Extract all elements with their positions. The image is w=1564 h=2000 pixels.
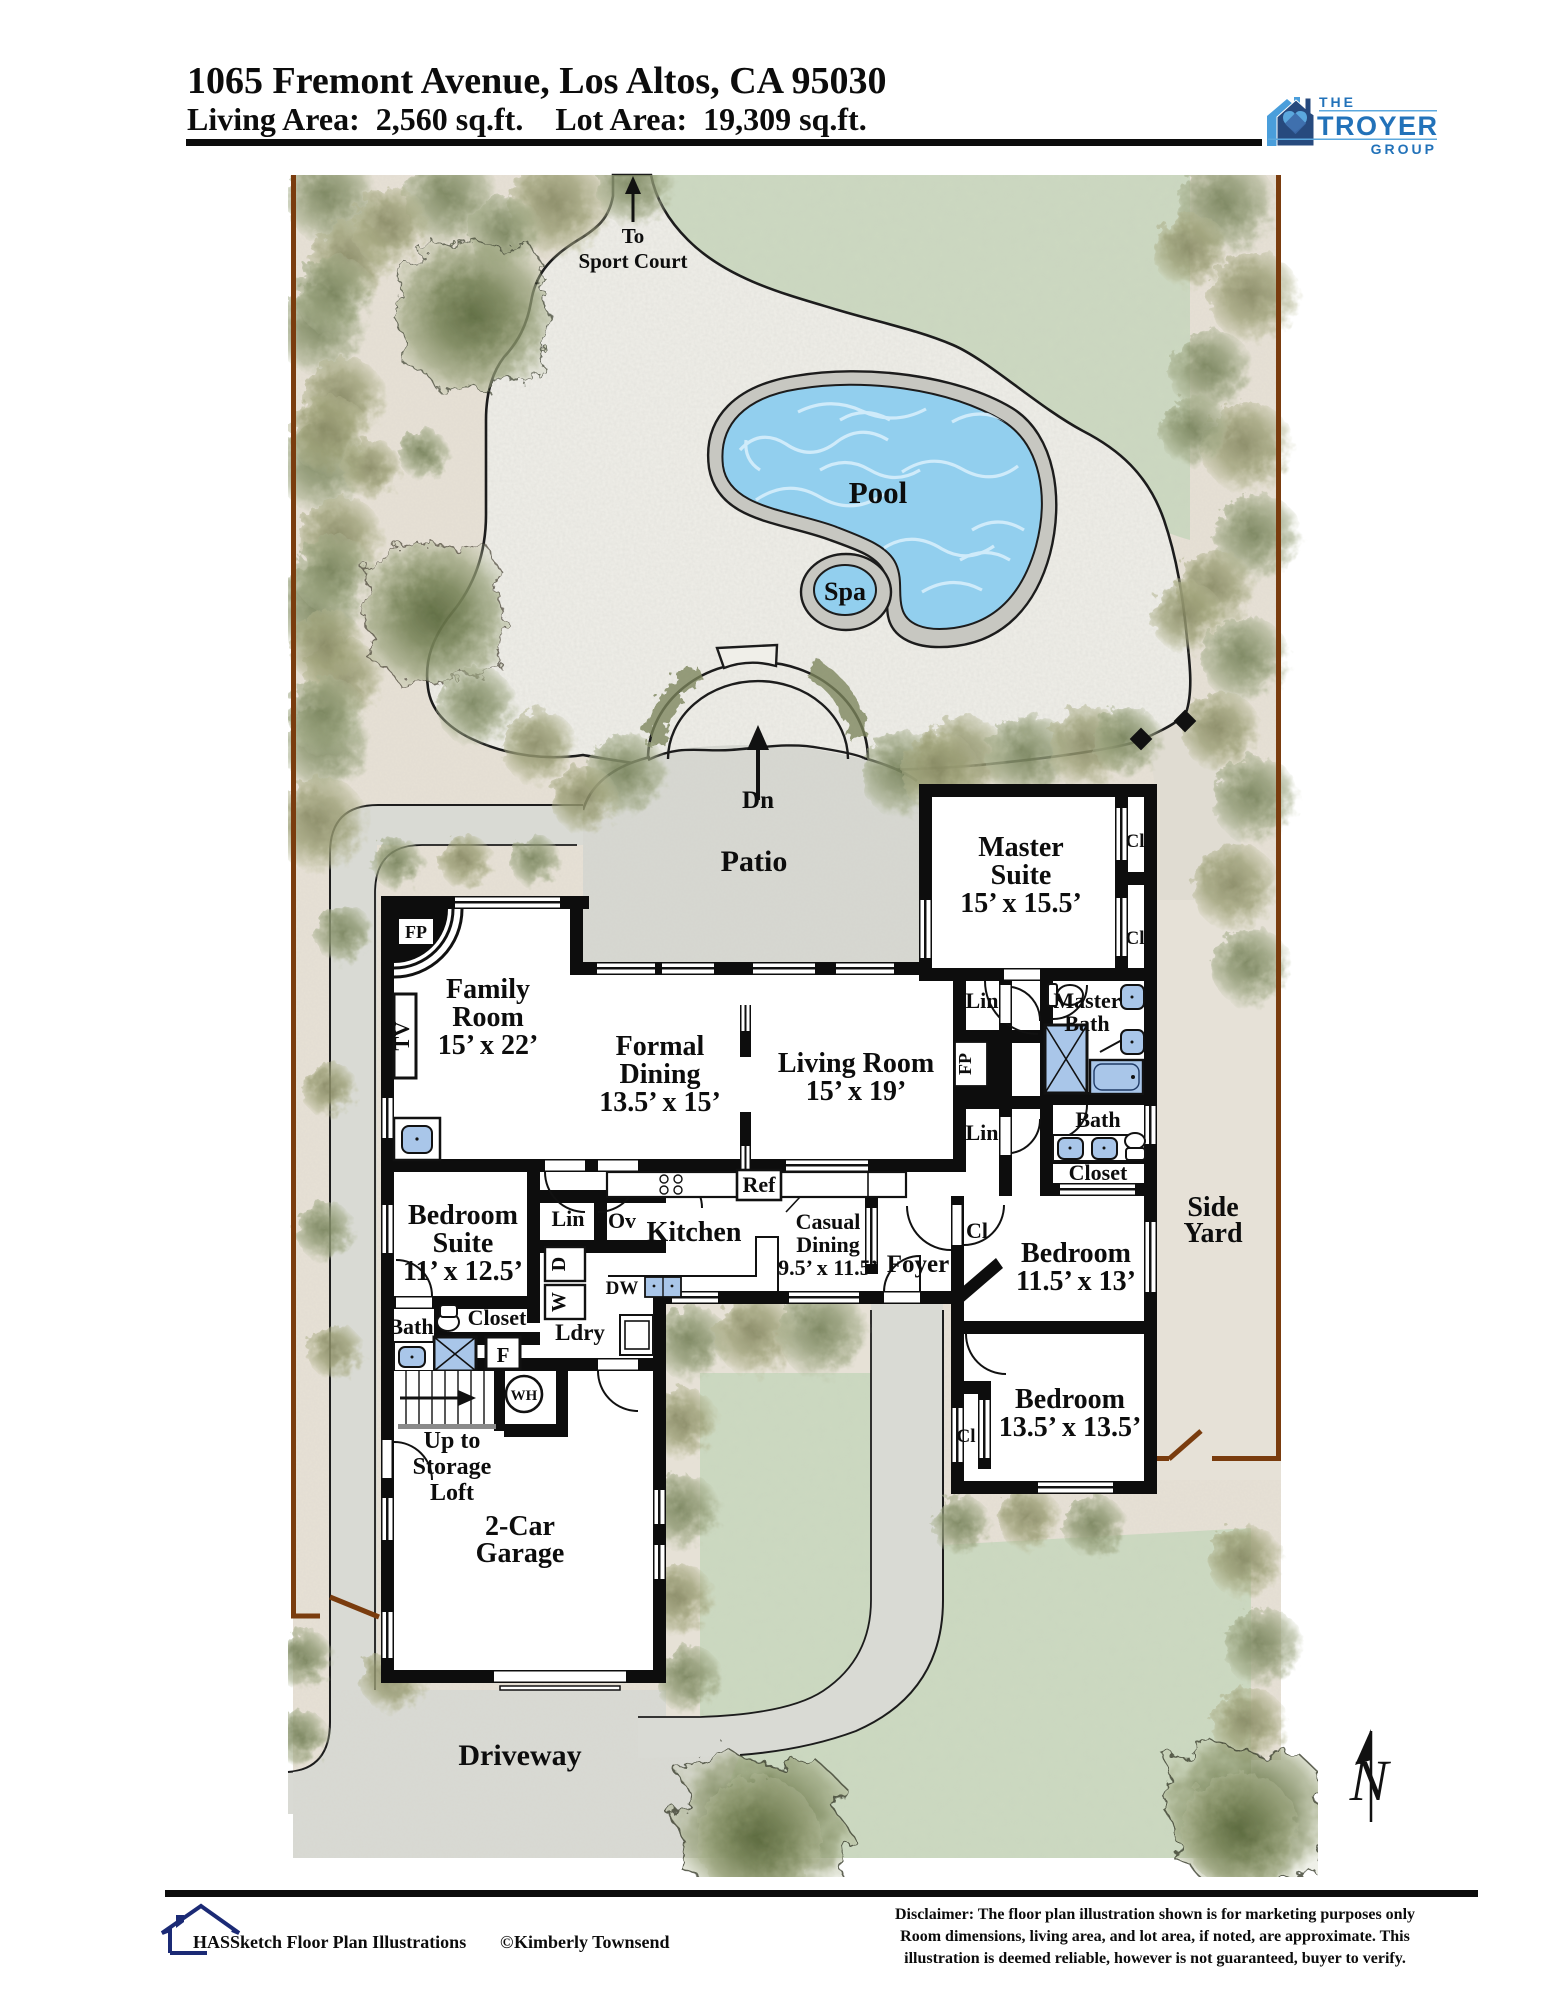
svg-text:Cl: Cl [1126, 928, 1145, 949]
svg-text:Bedroom: Bedroom [1015, 1384, 1125, 1415]
svg-text:Cl: Cl [966, 1218, 988, 1243]
svg-text:Lin: Lin [965, 988, 998, 1013]
svg-text:Closet: Closet [468, 1305, 527, 1330]
svg-text:Dining: Dining [796, 1232, 860, 1257]
svg-text:Ov: Ov [608, 1208, 636, 1233]
svg-text:Bedroom: Bedroom [1021, 1238, 1131, 1269]
svg-text:illustration is deemed reliabl: illustration is deemed reliable, however… [904, 1950, 1406, 1967]
svg-text:HASSketch Floor Plan Illustrat: HASSketch Floor Plan Illustrations [193, 1932, 466, 1952]
svg-text:15’ x 19’: 15’ x 19’ [806, 1076, 907, 1107]
svg-text:Room dimensions, living area,: Room dimensions, living area, and lot ar… [900, 1928, 1410, 1945]
svg-text:Patio: Patio [721, 845, 788, 878]
svg-text:Formal: Formal [616, 1031, 705, 1062]
svg-text:Bath: Bath [1075, 1107, 1120, 1132]
svg-text:Suite: Suite [991, 860, 1052, 891]
svg-text:FP: FP [405, 922, 427, 942]
svg-text:Cl: Cl [957, 1426, 976, 1447]
svg-text:11.5’ x 13’: 11.5’ x 13’ [1016, 1266, 1136, 1297]
svg-text:Dn: Dn [742, 787, 774, 814]
svg-text:Living Room: Living Room [778, 1048, 934, 1079]
svg-text:Storage: Storage [413, 1454, 492, 1480]
svg-text:Room: Room [452, 1002, 524, 1033]
svg-text:13.5’ x 15’: 13.5’ x 15’ [599, 1087, 721, 1118]
svg-text:F: F [497, 1343, 510, 1367]
svg-text:WH: WH [511, 1388, 538, 1404]
svg-text:Pool: Pool [849, 475, 908, 510]
svg-text:Yard: Yard [1183, 1218, 1243, 1249]
svg-text:Master: Master [1053, 988, 1120, 1013]
svg-text:TROYER: TROYER [1317, 111, 1439, 141]
svg-text:Disclaimer: The floor plan ill: Disclaimer: The floor plan illustration … [895, 1906, 1415, 1923]
svg-text:Sport Court: Sport Court [578, 249, 687, 273]
svg-text:Kitchen: Kitchen [647, 1217, 742, 1248]
svg-text:FP: FP [955, 1053, 975, 1075]
svg-text:13.5’ x 13.5’: 13.5’ x 13.5’ [999, 1412, 1142, 1443]
svg-text:Family: Family [446, 974, 530, 1005]
svg-text:Garage: Garage [476, 1538, 565, 1569]
svg-text:Living Area: 2,560 sq.ft.: Living Area: 2,560 sq.ft. Lot Area: 19,3… [187, 101, 867, 137]
svg-text:Lin: Lin [551, 1206, 584, 1231]
svg-text:Up to: Up to [424, 1428, 481, 1454]
svg-text:Driveway: Driveway [458, 1739, 581, 1772]
svg-text:Bedroom: Bedroom [408, 1200, 518, 1231]
svg-text:9.5’ x 11.5’: 9.5’ x 11.5’ [778, 1255, 878, 1280]
svg-text:Casual: Casual [796, 1209, 861, 1234]
svg-text:Ldry: Ldry [555, 1320, 605, 1345]
svg-text:Spa: Spa [824, 577, 866, 606]
svg-text:Kimberly Townsend: Kimberly Townsend [514, 1932, 670, 1952]
svg-text:DW: DW [606, 1278, 639, 1299]
svg-text:©: © [500, 1932, 513, 1952]
svg-text:Master: Master [978, 832, 1064, 863]
svg-text:Lin: Lin [965, 1120, 998, 1145]
svg-text:Bath: Bath [1064, 1011, 1109, 1036]
svg-text:Loft: Loft [430, 1480, 474, 1506]
svg-text:N: N [1349, 1748, 1392, 1813]
svg-text:THE: THE [1319, 94, 1356, 110]
svg-text:D: D [548, 1257, 570, 1271]
svg-text:To: To [622, 224, 645, 248]
svg-text:1065 Fremont Avenue, Los Altos: 1065 Fremont Avenue, Los Altos, CA 95030 [187, 60, 887, 102]
svg-text:Ref: Ref [743, 1172, 777, 1197]
svg-text:Cl: Cl [1126, 831, 1145, 852]
svg-text:Foyer: Foyer [887, 1251, 949, 1278]
svg-text:Bath: Bath [388, 1314, 433, 1339]
svg-text:15’ x 22’: 15’ x 22’ [438, 1030, 539, 1061]
svg-text:TV: TV [390, 1021, 414, 1050]
svg-text:11’ x 12.5’: 11’ x 12.5’ [403, 1256, 523, 1287]
svg-text:Closet: Closet [1069, 1160, 1128, 1185]
svg-text:Suite: Suite [433, 1228, 494, 1259]
svg-text:W: W [548, 1292, 570, 1312]
svg-text:15’ x 15.5’: 15’ x 15.5’ [960, 888, 1082, 919]
svg-text:Dining: Dining [620, 1059, 701, 1090]
svg-text:GROUP: GROUP [1371, 141, 1437, 157]
